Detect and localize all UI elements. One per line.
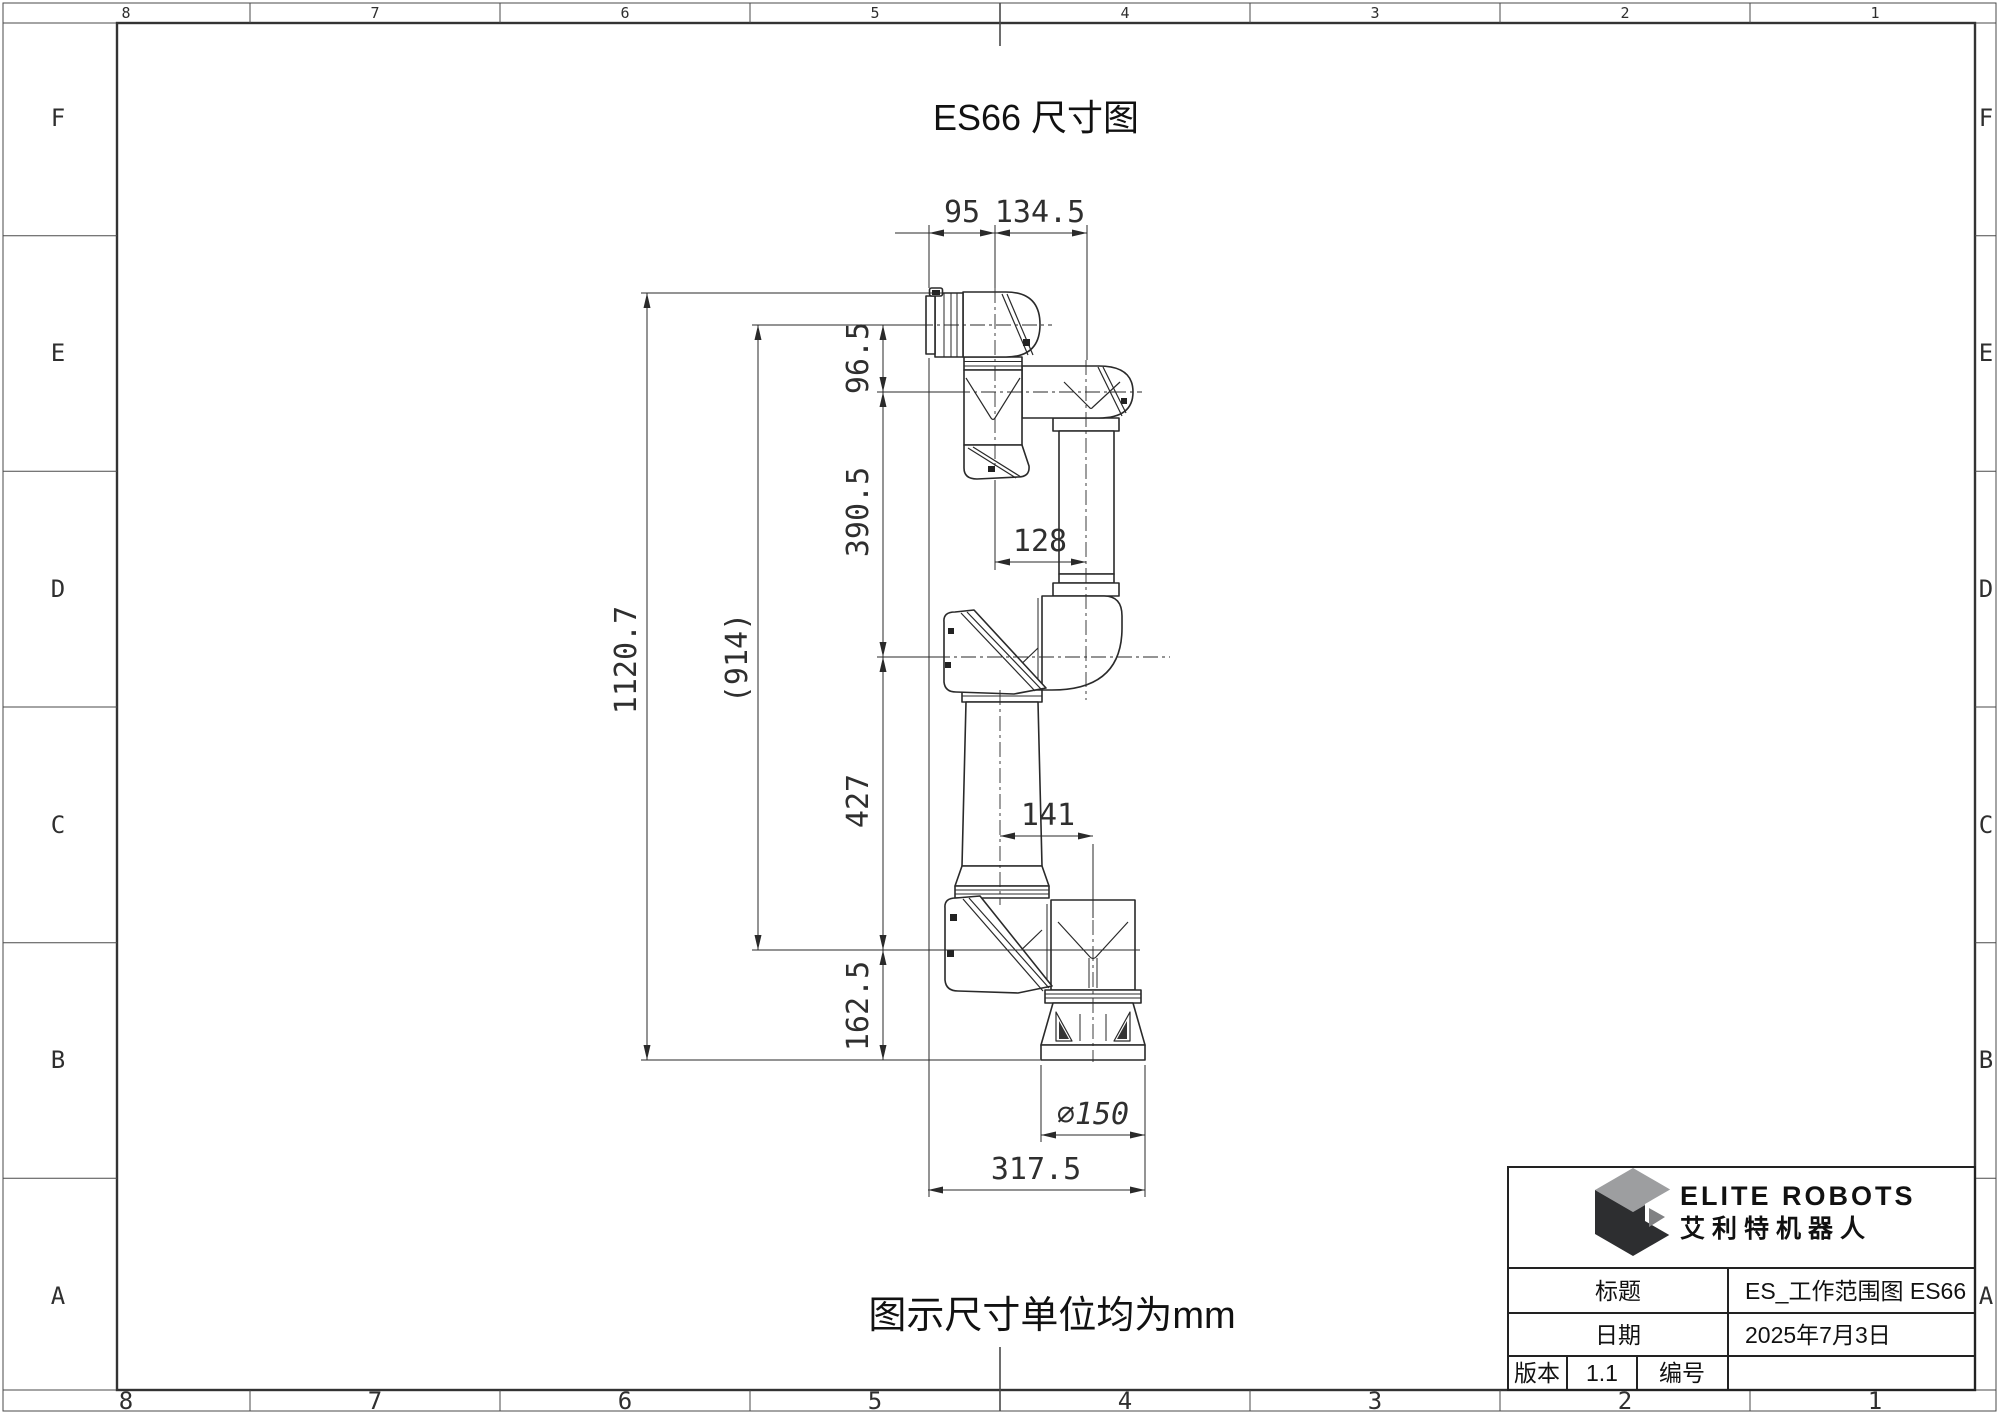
dim-wrist-width: 134.5	[995, 195, 1085, 230]
dim-forearm-length: 390.5	[841, 467, 876, 557]
dim-upper-arm-length: 427	[841, 774, 876, 828]
dim-total-height: 1120.7	[609, 606, 644, 714]
date-label: 日期	[1595, 1322, 1641, 1348]
grid-row-label: D	[1979, 575, 1993, 603]
grid-col-label: 8	[121, 4, 130, 22]
dim-base-height: 162.5	[841, 961, 876, 1051]
grid-col-label: 2	[1620, 4, 1629, 22]
grid-col-label: 5	[870, 4, 879, 22]
grid-row-label: A	[51, 1282, 66, 1310]
grid-col-label: 1	[1868, 1387, 1882, 1414]
grid-row-label: C	[1979, 811, 1993, 839]
date-value: 2025年7月3日	[1745, 1322, 1891, 1348]
grid-col-label: 7	[370, 4, 379, 22]
grid-col-label: 6	[620, 4, 629, 22]
grid-row-label: B	[51, 1046, 65, 1074]
drawing-sheet: 8 7 6 5 4 3 2 1 8 7 6 5 4 3 2 1 F E D C …	[0, 0, 1999, 1414]
grid-col-label: 1	[1870, 4, 1879, 22]
robot-drawing	[926, 288, 1145, 1060]
grid-col-label: 8	[119, 1387, 133, 1414]
version-value: 1.1	[1586, 1360, 1618, 1386]
dim-wrist-offset: 96.5	[841, 322, 876, 394]
grid-row-label: C	[51, 811, 65, 839]
brand-name-en: ELITE ROBOTS	[1680, 1181, 1916, 1211]
grid-row-label: E	[1979, 339, 1993, 367]
grid-col-label: 4	[1118, 1387, 1132, 1414]
dim-elbow-offset: 128	[1013, 524, 1067, 559]
units-note: 图示尺寸单位均为mm	[868, 1295, 1235, 1337]
grid-row-label: F	[1979, 104, 1993, 132]
drawing-title: ES66 尺寸图	[933, 97, 1139, 138]
grid-col-label: 5	[868, 1387, 882, 1414]
dim-overall-width: 317.5	[991, 1152, 1081, 1187]
grid-col-label: 6	[618, 1387, 632, 1414]
grid-col-label: 3	[1368, 1387, 1382, 1414]
dim-base-diameter: ∅150	[1057, 1097, 1129, 1132]
drawing-canvas: 8 7 6 5 4 3 2 1 8 7 6 5 4 3 2 1 F E D C …	[0, 0, 1999, 1414]
title-label: 标题	[1595, 1278, 1641, 1304]
elite-robots-logo-icon	[1595, 1168, 1671, 1256]
grid-col-label: 7	[368, 1387, 382, 1414]
grid-col-label: 3	[1370, 4, 1379, 22]
grid-row-label: D	[51, 575, 65, 603]
version-label: 版本	[1514, 1360, 1560, 1386]
grid-col-label: 4	[1120, 4, 1129, 22]
dim-height-ref: (914)	[720, 613, 755, 703]
title-block: ELITE ROBOTS 艾利特机器人 标题 ES_工作范围图 ES66 日期 …	[1508, 1167, 1975, 1390]
brand-name-cn: 艾利特机器人	[1680, 1215, 1872, 1243]
title-value: ES_工作范围图 ES66	[1745, 1278, 1966, 1304]
grid-col-label: 2	[1618, 1387, 1632, 1414]
grid-row-label: A	[1979, 1282, 1994, 1310]
dim-base-offset: 141	[1021, 798, 1075, 833]
grid-row-label: E	[51, 339, 65, 367]
number-label: 编号	[1659, 1360, 1705, 1386]
grid-row-label: B	[1979, 1046, 1993, 1074]
grid-row-label: F	[51, 104, 65, 132]
dim-flange-width: 95	[944, 195, 980, 230]
